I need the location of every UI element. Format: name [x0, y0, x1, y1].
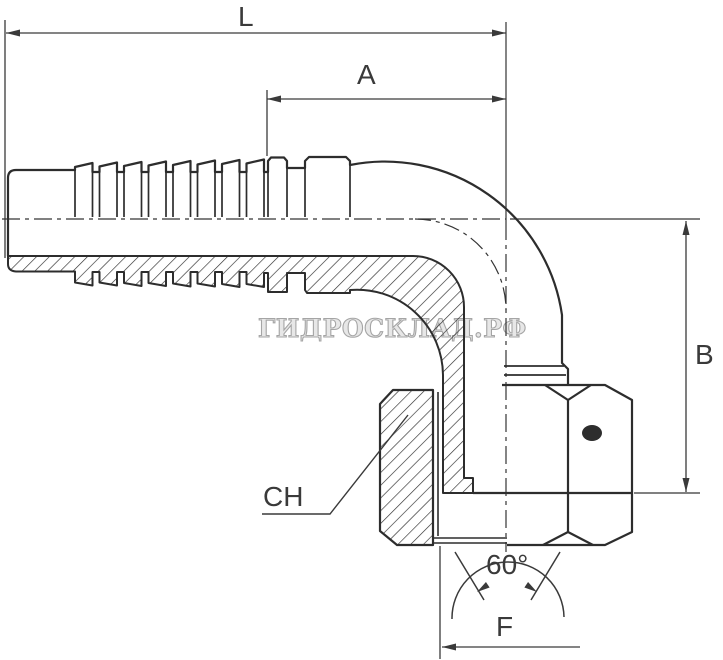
collar-section — [380, 390, 433, 545]
cone-flank-left — [455, 552, 484, 600]
dim-label-F: F — [496, 613, 513, 641]
dim-label-cone-angle: 60° — [486, 551, 528, 579]
technical-drawing-canvas: ГИДРОСКЛАД.РФ — [0, 0, 723, 660]
dim-label-A: A — [357, 61, 376, 89]
hex-nut — [473, 385, 632, 545]
dim-label-L: L — [238, 3, 254, 31]
dimension-lines — [5, 20, 686, 659]
nut-bottom-chamfer-valley — [543, 532, 593, 545]
nut-dimple-mark — [582, 425, 602, 441]
barb-ring-edges — [75, 160, 350, 218]
nut-top-chamfer-valley — [545, 385, 591, 400]
nipple-end-flare — [504, 366, 568, 385]
dimension-arrowheads — [6, 30, 690, 651]
fitting-drawing — [0, 0, 723, 660]
dim-label-CH: CH — [263, 483, 303, 511]
dim-label-B: B — [695, 341, 714, 369]
